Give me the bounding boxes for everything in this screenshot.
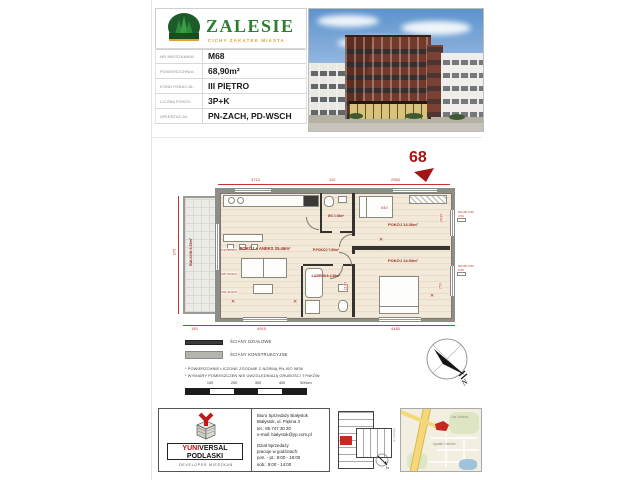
- scale-tick: 100: [197, 381, 223, 385]
- room-b-bottom-window: [379, 317, 421, 322]
- dim-inner-1103: 1103: [343, 282, 347, 291]
- building-left: [309, 63, 349, 115]
- sink-icon: [237, 197, 244, 204]
- siteplan-street-label: ul. Zacisze: [392, 428, 396, 442]
- spec-value: 68,90m²: [208, 66, 240, 76]
- spec-row-nr: NR MIESZKANIA: M68: [155, 49, 307, 64]
- spec-value: M68: [208, 51, 225, 61]
- compass-rose-icon: N: [422, 334, 476, 392]
- compass-north-label: N: [459, 377, 470, 388]
- spec-label: ORIENTACJA:: [160, 114, 200, 119]
- dim-line-bottom: [183, 325, 455, 326]
- ceiling-point-icon: ✕: [379, 238, 383, 243]
- spec-label: LICZBA POKOI:: [160, 99, 200, 104]
- room-label-bath: ŁAZIENKA 4.38m²: [303, 274, 349, 278]
- map-site-marker: [435, 421, 449, 431]
- wall-bath-top: [303, 264, 333, 266]
- hours-line: sob.: 9:00 - 14:00: [257, 462, 329, 468]
- map-street: [437, 449, 479, 451]
- sink-icon: [228, 197, 235, 204]
- dim-bottom-2: 4915: [257, 327, 266, 331]
- road: [309, 123, 483, 131]
- spec-value: PN-ZACH, PD-WSCH: [208, 111, 292, 121]
- brand-tagline: CICHY ZAKĄTEK MIASTA: [208, 38, 285, 43]
- bush: [449, 114, 465, 120]
- map-label-forest: Las Solnicki: [451, 415, 468, 419]
- cloud: [317, 15, 379, 27]
- dim-inner-540: 540: [381, 206, 388, 210]
- wall-wc-bottom: [320, 231, 332, 233]
- scale-tick: 500cm: [293, 381, 319, 385]
- siteplan-unit-highlight: [340, 436, 352, 445]
- spec-label: KONDYGNACJA:: [160, 84, 200, 89]
- contact-cell: Biuro Sprzedaży Białystok Białystok, ul.…: [252, 408, 330, 472]
- dim-line-left: [178, 196, 179, 314]
- company-name-red: YUNI: [182, 445, 199, 452]
- building-main: [345, 35, 431, 119]
- room-label-wc: WC 1.93m²: [321, 214, 351, 218]
- dim-top-2: 110: [329, 178, 335, 182]
- scale-tick: 400: [269, 381, 295, 385]
- dim-top-1: 3713: [251, 178, 260, 182]
- room-label-hall: P.POKÓJ 7.69m²: [303, 248, 349, 252]
- legend-structural-label: ŚCIANY KONSTRUKCYJNE: [230, 352, 288, 357]
- washbasin-icon: [338, 196, 347, 203]
- company-tagline: DEVELOPER MIESZKAŃ: [159, 463, 253, 467]
- building-render-image: [308, 8, 484, 132]
- pillow: [379, 306, 419, 314]
- apartment-spec-table: NR MIESZKANIA: M68 POWIERZCHNIA: 68,90m²…: [155, 48, 305, 124]
- location-map-cell: Las Solnicki Ignatki-Osiedle: [400, 408, 482, 472]
- company-name-line2: PODLASKI: [187, 453, 223, 460]
- spec-label: NR MIESZKANIA:: [160, 54, 200, 59]
- column-divider: [202, 94, 203, 108]
- room-label-room-b: POKÓJ 14.93m²: [371, 258, 435, 263]
- coffee-table: [253, 284, 273, 294]
- spec-label: POWIERZCHNIA:: [160, 69, 200, 74]
- map-street: [431, 437, 477, 439]
- company-logo-cell: YUNIVERSAL PODLASKI DEVELOPER MIESZKAŃ: [158, 408, 252, 472]
- ceiling-point-icon: ✕: [231, 300, 235, 305]
- company-logo-icon: [187, 411, 225, 443]
- win-mark: O87 90/220: [221, 272, 237, 276]
- sofa-cushion: [241, 258, 264, 278]
- kitchen-bar: [223, 234, 263, 242]
- balcony-door-window: [215, 224, 220, 270]
- legend-partition-swatch: [185, 340, 223, 345]
- company-name-box: YUNIVERSAL PODLASKI: [167, 443, 243, 460]
- column-divider: [202, 109, 203, 123]
- dim-left-1: 375: [172, 249, 176, 256]
- win-mark: O30 90/145: [221, 248, 237, 252]
- dim-inner-3635: 3635: [439, 214, 443, 223]
- spec-row-area: POWIERZCHNIA: 68,90m²: [155, 64, 307, 79]
- brand-name: ZALESIE: [206, 16, 295, 37]
- wardrobe: [409, 195, 447, 204]
- living-bottom-window: [243, 317, 287, 322]
- room-label-balkon: BALKON 6.53m²: [189, 207, 193, 297]
- dim-inner-250: 250: [438, 283, 442, 290]
- column-divider: [202, 64, 203, 78]
- bush: [349, 113, 363, 119]
- map-street: [445, 433, 447, 467]
- column-divider: [202, 79, 203, 93]
- legend-partition-label: ŚCIANY DZIAŁOWE: [230, 339, 272, 344]
- room-b-right-window: [450, 266, 455, 296]
- siteplan-north-label: N: [386, 465, 389, 470]
- cloud: [401, 21, 471, 35]
- siteplan-cell: N ul. Zacisze: [332, 408, 398, 472]
- room-a-right-window: [450, 210, 455, 236]
- scale-tick: 200: [221, 381, 247, 385]
- page-margin-line: [151, 0, 152, 480]
- window-symbol-icon: [457, 272, 466, 276]
- dim-bottom-3: 4485: [391, 327, 400, 331]
- siteplan-compass-icon: N: [374, 452, 392, 470]
- spec-value: III PIĘTRO: [208, 81, 249, 91]
- wall-rooms-left: [352, 264, 355, 317]
- room-label-room-a: POKÓJ 14.36m²: [371, 222, 435, 227]
- spec-row-rooms: LICZBA POKOI: 3P+K: [155, 94, 307, 109]
- map-pond: [459, 459, 477, 470]
- unit-number: 68: [409, 149, 427, 167]
- washer-icon: [305, 300, 320, 314]
- map-label-district: Ignatki-Osiedle: [433, 442, 456, 446]
- trees-logo-icon: [166, 12, 202, 46]
- floorplan-sheet: ZALESIE CICHY ZAKĄTEK MIASTA NR MIESZKAN…: [0, 0, 640, 480]
- ceiling-point-icon: ✕: [293, 300, 297, 305]
- stove-icon: [303, 195, 319, 207]
- bush: [405, 113, 423, 119]
- wall-rooms-divider: [355, 246, 450, 250]
- window-symbol-icon: [457, 218, 466, 222]
- wall-rooms-left: [352, 193, 355, 236]
- scale-tick: 300: [245, 381, 271, 385]
- spec-value: 3P+K: [208, 96, 230, 106]
- ceiling-point-icon: ✕: [430, 294, 434, 299]
- legend-note-1: * POWIERZCHNIE LICZONE ZGODNIE Z NORMĄ P…: [185, 366, 303, 371]
- brand-box: ZALESIE CICHY ZAKĄTEK MIASTA: [155, 8, 307, 50]
- kitchen-window: [235, 188, 271, 193]
- room-label-living: POKÓJ + ANEKS 25.46m²: [233, 246, 297, 251]
- header-divider: [152, 137, 482, 138]
- column-divider: [202, 49, 203, 63]
- pillow: [359, 196, 367, 218]
- apartment-shell: [215, 188, 455, 322]
- bathtub-icon: [305, 268, 323, 298]
- wall-wc-left: [320, 193, 322, 233]
- dim-bottom-1: 150: [191, 327, 198, 331]
- building-right: [441, 53, 483, 117]
- win-mark: O91 90/225: [221, 290, 237, 294]
- win-mark: 90/150 O30 0.54: [458, 210, 474, 218]
- spec-row-floor: KONDYGNACJA: III PIĘTRO: [155, 79, 307, 94]
- legend-note-2: * WYMIARY POMIESZCZEŃ NIE UWZGLĘDNIAJĄ G…: [185, 373, 320, 378]
- dim-line-top: [218, 184, 450, 185]
- toilet-icon: [338, 300, 348, 312]
- win-mark: 90/150 O30 0.55: [458, 264, 474, 272]
- dim-top-3: 2983: [391, 178, 400, 182]
- room-a-top-window: [393, 188, 437, 193]
- unit-arrow-icon: [413, 168, 435, 183]
- legend-structural-swatch: [185, 351, 223, 359]
- company-name-black: VERSAL: [199, 445, 227, 452]
- toilet-icon: [324, 196, 334, 207]
- spec-row-orientation: ORIENTACJA: PN-ZACH, PD-WSCH: [155, 109, 307, 124]
- scale-bar: [185, 388, 307, 395]
- floor-plan: BALKON 6.53m²: [183, 188, 455, 322]
